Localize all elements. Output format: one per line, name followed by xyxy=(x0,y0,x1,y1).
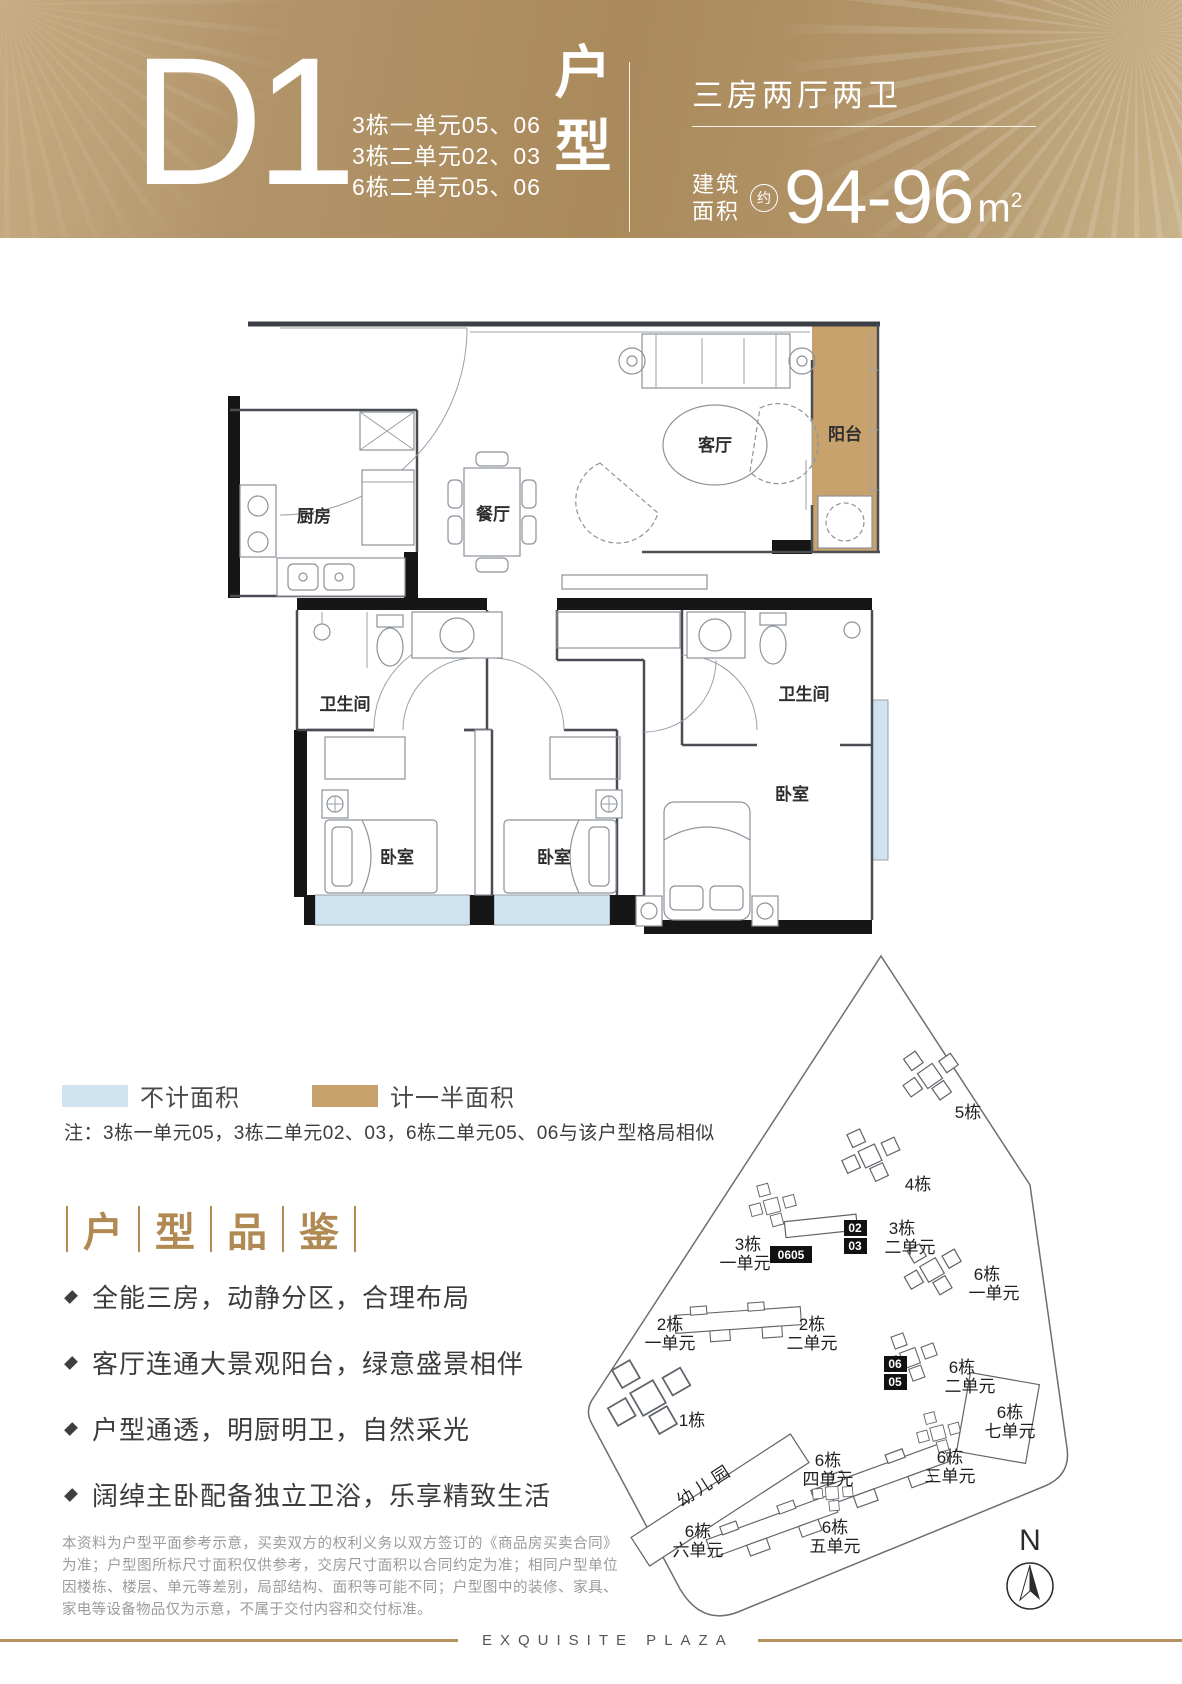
map-label: 五单元 xyxy=(810,1537,861,1556)
toilet xyxy=(760,626,786,664)
wall-column xyxy=(470,895,494,925)
room-label-living: 客厅 xyxy=(697,435,732,455)
building-cluster-5 xyxy=(897,1045,960,1104)
map-label: 5栋 xyxy=(955,1103,981,1122)
sofa xyxy=(642,334,790,388)
building-cluster-4 xyxy=(835,1122,904,1188)
vestibule-walls xyxy=(557,610,644,730)
area-unit-m: m xyxy=(977,186,1010,230)
diamond-bullet-icon xyxy=(64,1290,78,1304)
map-label: 二单元 xyxy=(885,1238,936,1257)
unit-badge-text: 03 xyxy=(848,1239,862,1253)
wall-column xyxy=(404,552,418,598)
brochure-page: D1 3栋一单元05、06 3栋二单元02、03 6栋二单元05、06 户 型 … xyxy=(0,0,1182,1684)
highlight-text: 客厅连通大景观阳台，绿意盛景相伴 xyxy=(92,1344,524,1381)
door-arc xyxy=(403,658,475,730)
area-unit-sup: 2 xyxy=(1011,189,1023,212)
legend-label: 不计面积 xyxy=(140,1078,240,1113)
wall-column xyxy=(557,598,872,610)
highlight-item: 客厅连通大景观阳台，绿意盛景相伴 xyxy=(66,1344,551,1381)
map-label: 6栋 xyxy=(937,1448,963,1467)
highlights-title: 户 型 品 鉴 xyxy=(66,1200,356,1258)
wardrobe xyxy=(550,737,620,779)
side-table xyxy=(619,348,645,374)
bay-window-zone xyxy=(494,895,610,925)
header-divider xyxy=(629,62,630,232)
room-label-bedroom: 卧室 xyxy=(537,847,571,867)
map-label: 4栋 xyxy=(905,1175,931,1194)
area-label: 建筑 面积 xyxy=(692,171,740,225)
compass-letter: N xyxy=(1019,1524,1041,1557)
highlight-item: 阔绰主卧配备独立卫浴，乐享精致生活 xyxy=(66,1476,551,1513)
room-label-bathroom: 卫生间 xyxy=(779,684,830,704)
map-label: 3栋 xyxy=(735,1235,761,1254)
category-char: 型 xyxy=(552,110,614,184)
title-char: 户 xyxy=(83,1200,123,1258)
map-label: 三单元 xyxy=(925,1467,976,1486)
fridge xyxy=(362,470,414,545)
bay-window-zone xyxy=(872,700,888,860)
floor-plan: 厨房 餐厅 客厅 阳台 卫生间 卫生间 卧室 卧室 卧室 xyxy=(212,300,907,945)
disclaimer-text: 本资料为户型平面参考示意，买卖双方的权利义务以双方签订的《商品房买卖合同》为准；… xyxy=(62,1533,618,1621)
summary-underline xyxy=(692,126,1036,127)
legend-swatch-tan xyxy=(312,1085,378,1107)
highlight-item: 户型通透，明厨明卫，自然采光 xyxy=(66,1410,551,1447)
footer-brand: EXQUISITE PLAZA xyxy=(482,1632,734,1649)
footer-line xyxy=(0,1639,458,1642)
unit-line: 3栋一单元05、06 xyxy=(352,110,541,141)
vanity-counter xyxy=(412,612,502,658)
footer: EXQUISITE PLAZA xyxy=(0,1632,1182,1649)
nightstand xyxy=(636,896,662,926)
map-label: 二单元 xyxy=(787,1334,838,1353)
map-label: 四单元 xyxy=(803,1470,854,1489)
circa-badge: 约 xyxy=(750,184,778,212)
highlight-text: 阔绰主卧配备独立卫浴，乐享精致生活 xyxy=(92,1476,551,1513)
wall-column xyxy=(228,396,240,598)
unit-badge-text: 05 xyxy=(888,1375,902,1389)
room-label-bedroom: 卧室 xyxy=(775,784,809,804)
title-bar xyxy=(210,1206,212,1252)
area-label-bottom: 面积 xyxy=(692,198,740,225)
map-label: 一单元 xyxy=(645,1334,696,1353)
legend-label: 计一半面积 xyxy=(390,1078,515,1113)
map-label: 六单元 xyxy=(673,1541,724,1560)
unit-badge-text: 0605 xyxy=(778,1248,805,1262)
area-value: 94-96 xyxy=(784,160,973,236)
map-label: 七单元 xyxy=(985,1422,1036,1441)
bedroom-divider-wall xyxy=(475,730,492,895)
unit-line: 6栋二单元05、06 xyxy=(352,172,541,203)
map-label: 二单元 xyxy=(945,1377,996,1396)
sideboard xyxy=(562,575,707,589)
highlight-text: 户型通透，明厨明卫，自然采光 xyxy=(92,1410,470,1447)
wall-column xyxy=(294,730,307,897)
room-label-balcony: 阳台 xyxy=(828,424,862,444)
map-label: 6栋 xyxy=(997,1403,1023,1422)
unit-line: 3栋二单元02、03 xyxy=(352,141,541,172)
chair xyxy=(476,558,508,572)
door-arc xyxy=(644,660,716,732)
plan-code: D1 xyxy=(132,36,349,206)
chair xyxy=(448,516,462,544)
legend-swatch-blue xyxy=(62,1085,128,1107)
bay-window-zone xyxy=(315,895,470,925)
wall-column xyxy=(297,598,487,610)
diamond-bullet-icon xyxy=(64,1356,78,1370)
map-label: 6栋 xyxy=(949,1358,975,1377)
side-table-inner xyxy=(627,356,637,366)
shower-head-icon xyxy=(314,624,330,640)
map-label: 3栋 xyxy=(889,1219,915,1238)
map-label: 一单元 xyxy=(720,1254,771,1273)
map-label: 2栋 xyxy=(799,1315,825,1334)
bed xyxy=(664,802,750,920)
diamond-bullet-icon xyxy=(64,1488,78,1502)
door-arc xyxy=(682,655,757,730)
site-map: 0605 02 03 06 05 5栋 4栋 3栋 一单元 3栋 二单元 6栋 … xyxy=(540,928,1180,1628)
chair xyxy=(476,452,508,466)
door-arc xyxy=(492,658,564,730)
footer-line xyxy=(758,1639,1182,1642)
title-bar xyxy=(138,1206,140,1252)
title-bar xyxy=(354,1206,356,1252)
unit-badge-text: 02 xyxy=(848,1221,862,1235)
map-label: 6栋 xyxy=(822,1518,848,1537)
toilet-tank xyxy=(377,615,403,627)
map-label: 2栋 xyxy=(657,1315,683,1334)
room-label-bedroom: 卧室 xyxy=(380,847,414,867)
chair xyxy=(522,516,536,544)
unit-list: 3栋一单元05、06 3栋二单元02、03 6栋二单元05、06 xyxy=(352,110,541,203)
legend: 不计面积 计一半面积 xyxy=(62,1078,515,1113)
title-char: 品 xyxy=(227,1200,267,1258)
title-bar xyxy=(66,1206,68,1252)
area-unit: m2 xyxy=(977,173,1022,236)
map-label: 一单元 xyxy=(969,1284,1020,1303)
title-bar xyxy=(282,1206,284,1252)
compass-needle-dark xyxy=(1030,1565,1040,1600)
chair xyxy=(522,480,536,508)
nightstand xyxy=(752,896,778,926)
room-label-kitchen: 厨房 xyxy=(297,506,331,526)
room-label-dining: 餐厅 xyxy=(476,504,510,524)
toilet-tank xyxy=(760,613,786,625)
category-char: 户 xyxy=(552,36,614,110)
room-label-bathroom: 卫生间 xyxy=(320,694,371,714)
toilet xyxy=(377,628,403,666)
area-label-top: 建筑 xyxy=(692,171,740,198)
map-label: 6栋 xyxy=(974,1265,1000,1284)
wardrobe xyxy=(557,612,680,648)
wardrobe xyxy=(325,737,405,779)
shower-head-icon xyxy=(844,622,860,638)
diamond-bullet-icon xyxy=(64,1422,78,1436)
title-char: 鉴 xyxy=(299,1200,339,1258)
armchair xyxy=(576,463,658,543)
chair xyxy=(448,480,462,508)
title-char: 型 xyxy=(155,1200,195,1258)
map-label: 1栋 xyxy=(679,1411,705,1430)
side-table-inner xyxy=(797,356,807,366)
highlight-item: 全能三房，动静分区，合理布局 xyxy=(66,1278,551,1315)
compass-needle-light xyxy=(1020,1565,1030,1600)
highlights-list: 全能三房，动静分区，合理布局 客厅连通大景观阳台，绿意盛景相伴 户型通透，明厨明… xyxy=(66,1278,551,1542)
layout-summary: 三房两厅两卫 xyxy=(692,70,902,115)
wall-column xyxy=(304,895,315,925)
armchair xyxy=(750,404,818,484)
map-label: 6栋 xyxy=(815,1451,841,1470)
highlight-text: 全能三房，动静分区，合理布局 xyxy=(92,1278,470,1315)
header-banner: D1 3栋一单元05、06 3栋二单元02、03 6栋二单元05、06 户 型 … xyxy=(0,0,1182,238)
category-vertical-title: 户 型 xyxy=(552,36,614,184)
unit-badge-text: 06 xyxy=(888,1357,902,1371)
map-label: 6栋 xyxy=(685,1522,711,1541)
area-block: 建筑 面积 约 94-96 m2 xyxy=(692,160,1022,236)
